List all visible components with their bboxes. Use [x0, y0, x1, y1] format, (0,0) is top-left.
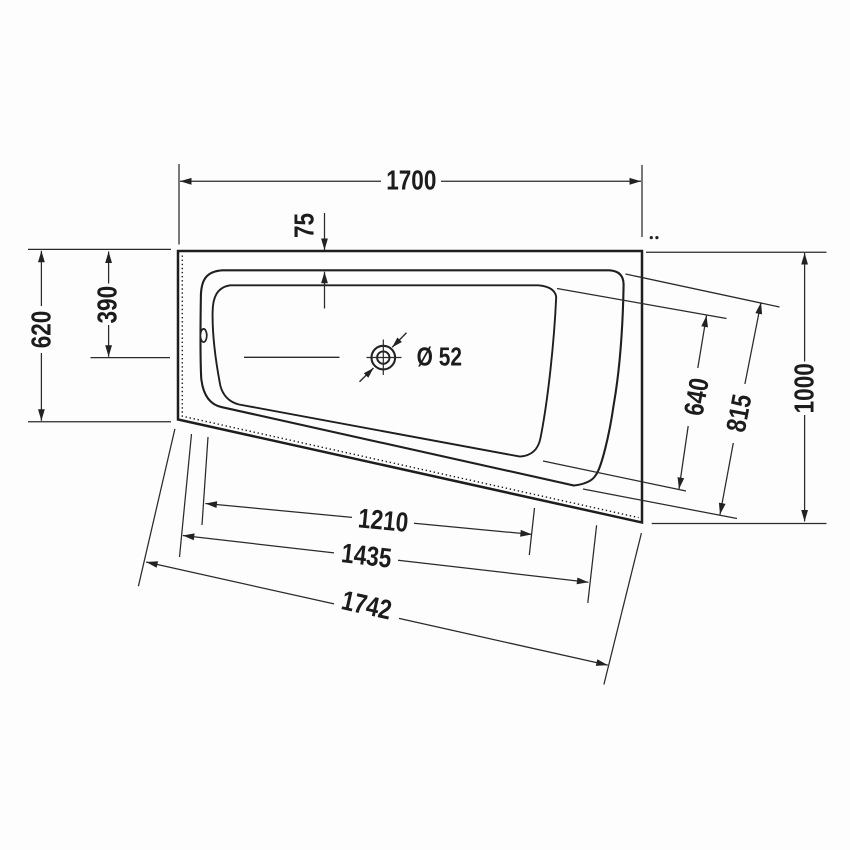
svg-text:1000: 1000: [789, 363, 820, 413]
svg-text:Ø 52: Ø 52: [417, 343, 462, 371]
svg-text:75: 75: [289, 213, 320, 238]
svg-text:640: 640: [679, 376, 716, 418]
svg-text:1700: 1700: [386, 166, 436, 197]
svg-text:1210: 1210: [357, 503, 410, 538]
svg-text:1435: 1435: [340, 538, 393, 574]
svg-text:620: 620: [26, 311, 57, 349]
svg-text:390: 390: [92, 286, 123, 324]
